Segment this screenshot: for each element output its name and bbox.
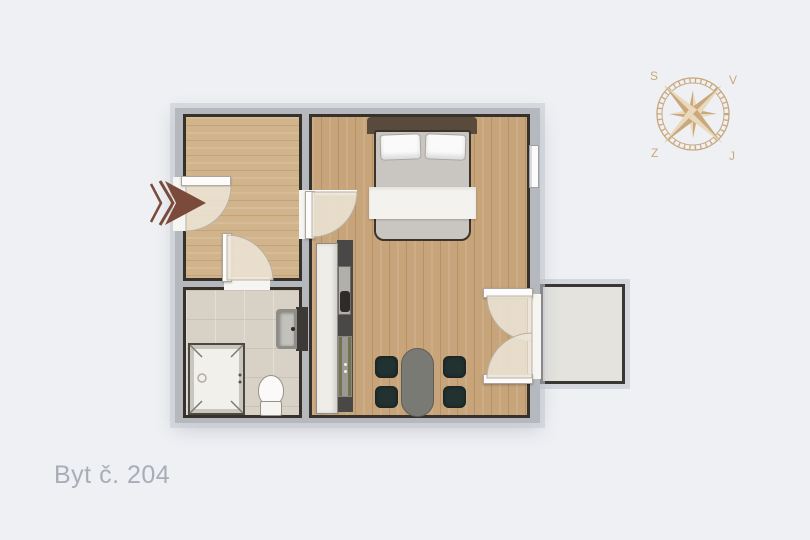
- living-door: [305, 191, 315, 239]
- faucet-icon: [291, 327, 295, 331]
- stove-knob: [344, 363, 347, 366]
- compass-star: [664, 85, 722, 143]
- window: [529, 145, 539, 188]
- kitchen-stove: [338, 336, 352, 397]
- dining-chair: [375, 356, 398, 378]
- bathroom-door: [222, 233, 232, 282]
- bed-blanket: [369, 187, 476, 219]
- compass-letter-v: V: [729, 73, 737, 87]
- balcony-door: [483, 288, 533, 298]
- dining-chair: [443, 386, 466, 408]
- washbasin-backsplash: [296, 307, 308, 351]
- dining-chair: [443, 356, 466, 378]
- room-hallway: [183, 114, 302, 281]
- pillow: [380, 133, 422, 160]
- balcony-door-opening: [528, 294, 541, 379]
- compass-letter-s: S: [650, 69, 658, 83]
- living-door-lintel: [312, 190, 357, 196]
- toilet-tank: [260, 401, 282, 416]
- shower: [188, 343, 245, 415]
- dining-chair: [375, 386, 398, 408]
- floorplan-canvas: S V Z J Byt č. 204: [0, 0, 810, 540]
- balcony: [540, 284, 625, 384]
- dining-table: [401, 348, 434, 417]
- compass-letter-z: Z: [651, 146, 658, 160]
- kitchen-counter: [316, 243, 338, 414]
- balcony-door: [483, 374, 533, 384]
- pillow: [425, 133, 467, 160]
- stove-knob: [344, 370, 347, 373]
- entrance-door: [181, 176, 231, 186]
- kitchen-sink-basin: [340, 291, 350, 312]
- compass-letter-j: J: [729, 149, 735, 163]
- compass-rose-icon: S V Z J: [645, 58, 745, 166]
- apartment-label: Byt č. 204: [54, 461, 170, 490]
